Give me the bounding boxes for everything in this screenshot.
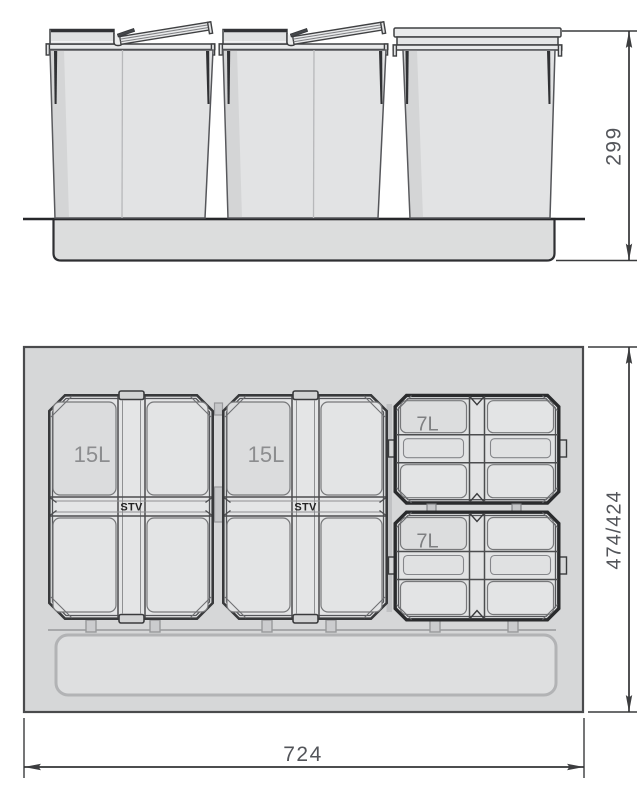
svg-text:299: 299: [603, 126, 626, 166]
svg-text:724: 724: [283, 743, 323, 766]
svg-text:474/424: 474/424: [604, 490, 626, 569]
